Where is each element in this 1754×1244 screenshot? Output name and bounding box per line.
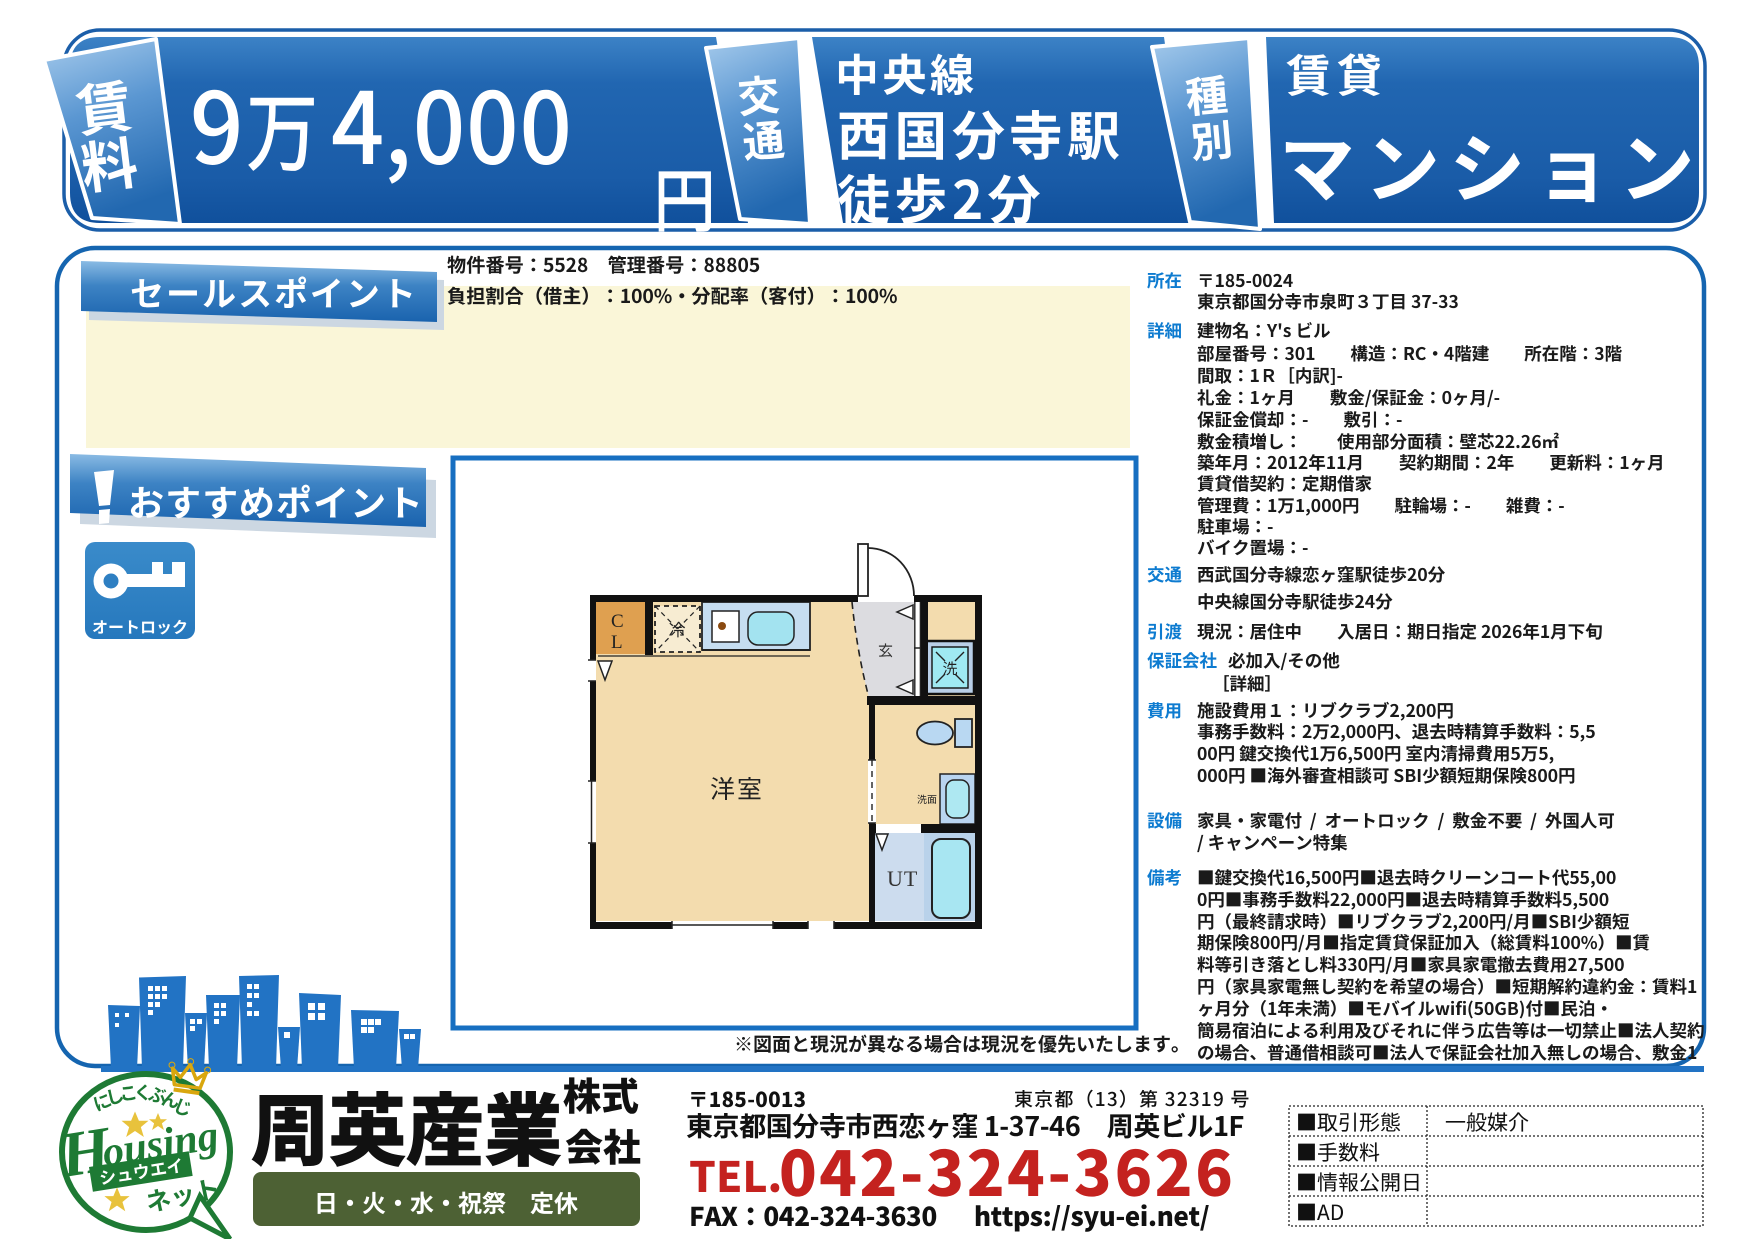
- svg-text:UT: UT: [887, 866, 918, 891]
- svg-text:L: L: [611, 632, 623, 653]
- svg-text:C: C: [611, 611, 624, 632]
